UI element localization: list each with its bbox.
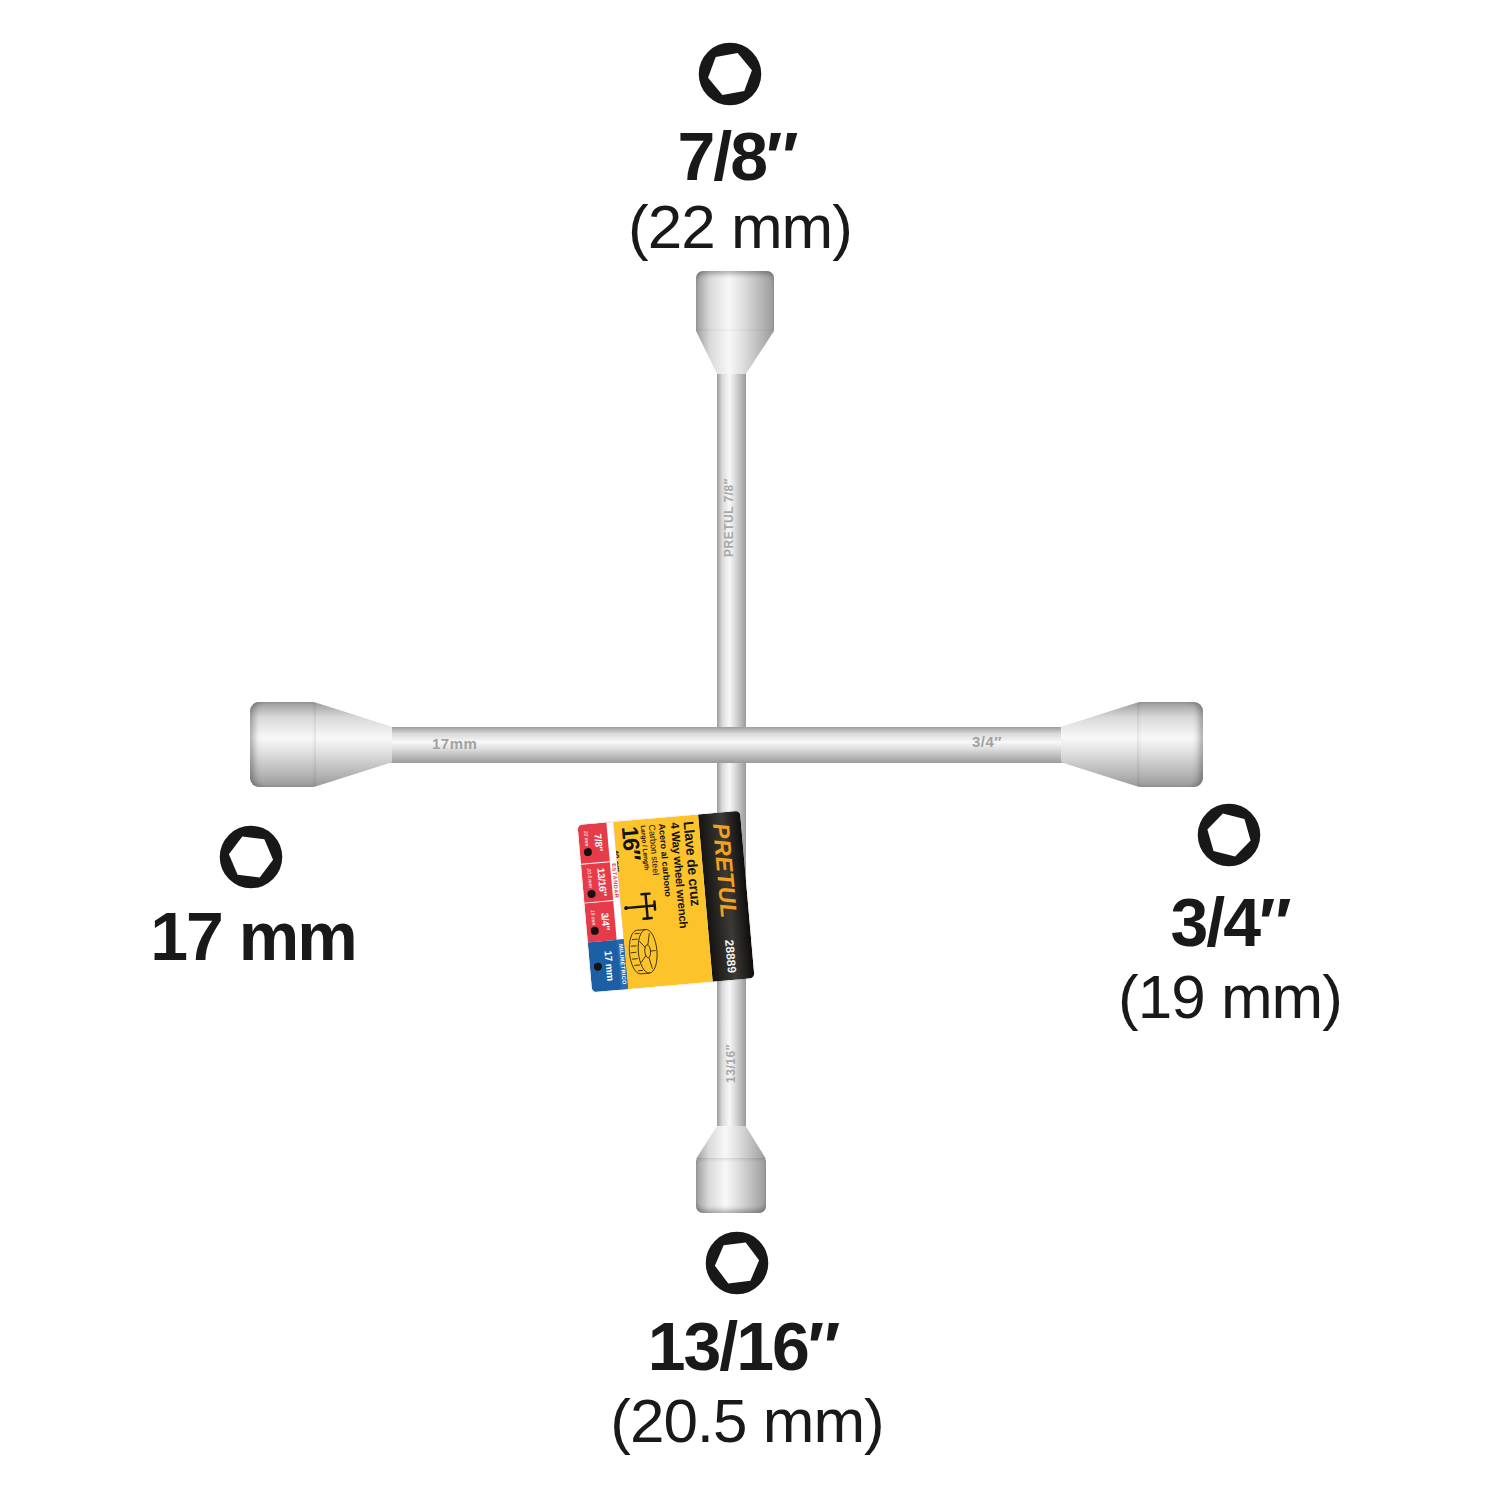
product-hang-tag: PRETUL 28889 Llave de cruz 4 Way wheel w… xyxy=(577,811,754,993)
size-callout-right: 3/4″ xyxy=(1170,888,1289,956)
socket-bottom-taper xyxy=(696,1126,766,1159)
hex-socket-icon-right xyxy=(1193,799,1265,871)
size-callout-top: 7/8″ xyxy=(677,122,796,190)
socket-dot-icon xyxy=(588,889,597,898)
socket-right-taper xyxy=(1061,702,1139,787)
size-callout-left: 17 mm xyxy=(150,902,355,970)
standard-size-mm: 19 mm xyxy=(590,910,597,926)
standard-size-value: 3/4″ xyxy=(600,912,611,930)
socket-dot-icon xyxy=(594,962,603,971)
standard-size-mm: 22 mm xyxy=(584,831,591,847)
standard-size-value: 7/8″ xyxy=(593,833,604,851)
hex-socket-icon-bottom xyxy=(701,1227,773,1299)
standard-size-entry: 7/8″ 22 mm xyxy=(577,822,609,864)
standard-size-entry: 3/4″ 19 mm xyxy=(584,901,616,942)
metric-size-value: 17 mm xyxy=(603,950,616,981)
engraving-right-arm: 3/4″ xyxy=(972,733,1002,750)
tag-sku: 28889 xyxy=(722,939,739,973)
socket-top-cup xyxy=(696,271,774,333)
hex-socket-icon-left xyxy=(215,821,287,893)
socket-left-cup xyxy=(250,702,316,787)
socket-dot-icon xyxy=(591,927,600,936)
metric-size-entry: 17 mm xyxy=(588,940,621,992)
hex-socket-icon-top xyxy=(694,38,766,110)
brand-logo: PRETUL xyxy=(707,822,742,919)
socket-left-taper xyxy=(314,702,392,787)
tag-body: Llave de cruz 4 Way wheel wrench Acero a… xyxy=(613,814,712,989)
standard-size-entry: 13/16″ 20.5 mm xyxy=(581,862,613,904)
engraving-left-arm: 17mm xyxy=(432,735,477,752)
socket-dot-icon xyxy=(584,848,593,857)
metric-callout-bottom: (20.5 mm) xyxy=(610,1390,883,1452)
engraving-upper-shaft: PRETUL 7/8″ xyxy=(722,443,737,593)
socket-top-taper xyxy=(696,331,774,374)
metric-sizes-section: MILIMÉTRICO 17 mm xyxy=(588,939,628,992)
product-image-wheel-wrench: 17mm 3/4″ PRETUL 7/8″ 13/16″ 7/8″ (22 mm… xyxy=(0,0,1500,1500)
metric-callout-right: (19 mm) xyxy=(1118,966,1342,1028)
cross-wrench-pictogram xyxy=(622,890,660,923)
socket-bottom-cup xyxy=(696,1158,766,1213)
wheel-pictogram xyxy=(623,922,662,981)
standard-size-mm: 20.5 mm xyxy=(587,868,595,888)
standard-size-value: 13/16″ xyxy=(596,868,608,897)
metric-callout-top: (22 mm) xyxy=(628,196,852,258)
socket-right-cup xyxy=(1137,702,1203,787)
engraving-lower-shaft: 13/16″ xyxy=(724,1019,739,1109)
size-callout-bottom: 13/16″ xyxy=(648,1312,839,1380)
